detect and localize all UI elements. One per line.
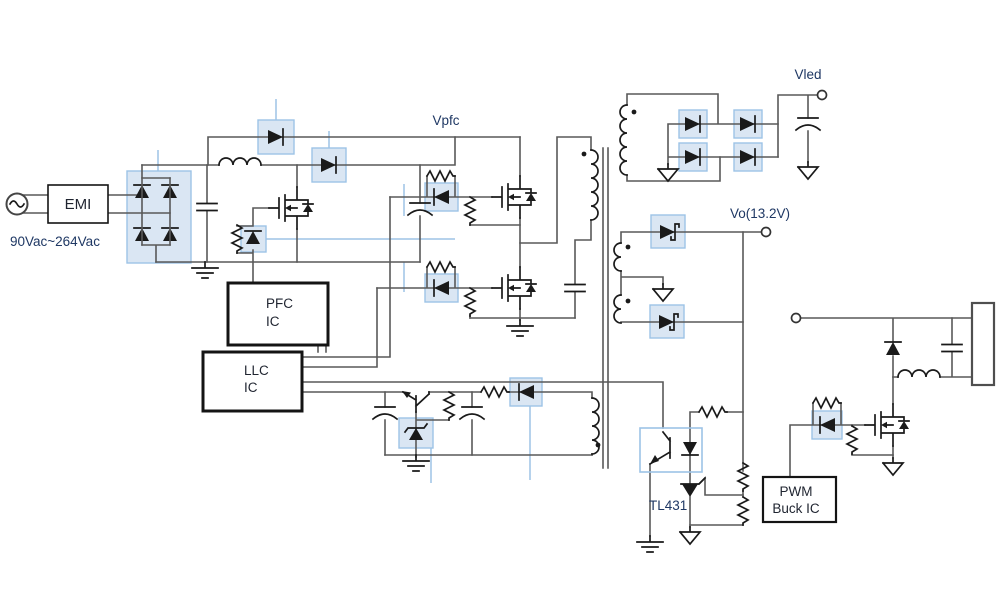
ground-icon: [798, 162, 818, 179]
vpfc-net-label: Vpfc: [432, 113, 459, 128]
ground-icon: [658, 164, 678, 181]
pfc-gate-resistor-icon: [232, 225, 242, 253]
blocks-and-labels: EMI 90Vac~264Vac PFC IC LLC IC PWM Buck …: [10, 67, 836, 522]
vled-winding-icon: [620, 105, 627, 175]
transformer-icon: [582, 105, 637, 468]
llc-ic-label-line1: LLC: [244, 363, 269, 378]
load-block: [972, 303, 994, 385]
pfc-ic-label-line2: IC: [266, 314, 280, 329]
buck-mosfet-icon: [865, 404, 909, 446]
vled-terminal: [818, 91, 827, 100]
divider-resistor-bottom-icon: [738, 497, 748, 525]
ground-icon: [507, 320, 533, 336]
schematic-canvas: EMI 90Vac~264Vac PFC IC LLC IC PWM Buck …: [0, 0, 1000, 600]
aux-bias-resistor-icon: [444, 392, 454, 420]
ground-icon: [653, 284, 673, 301]
llc-ic-label-line2: IC: [244, 380, 258, 395]
aux-cap-icon: [373, 407, 397, 419]
buck-cap-icon: [942, 345, 962, 352]
emi-filter-label: EMI: [65, 196, 92, 213]
wires: [17, 94, 972, 536]
hb-low-pulldown-resistor-icon: [465, 288, 475, 316]
ground-icon: [637, 536, 663, 552]
pwm-buck-ic-label-line2: Buck IC: [772, 501, 820, 516]
tl431-icon: [681, 478, 705, 497]
vo-terminal: [762, 228, 771, 237]
bulk-cap-icon: [197, 204, 217, 211]
hb-low-gate-resistor-icon: [427, 262, 455, 272]
vo-winding-icon: [614, 243, 621, 323]
pfc-mosfet-icon: [269, 187, 313, 229]
aux-series-resistor-icon: [481, 387, 509, 397]
aux-cap-icon: [460, 407, 484, 419]
pfc-ic-label-line1: PFC: [266, 296, 293, 311]
ground-icon: [403, 455, 429, 471]
vo-net-label: Vo(13.2V): [730, 206, 790, 221]
vled-output-cap-icon: [796, 118, 820, 130]
schematic-page: EMI 90Vac~264Vac PFC IC LLC IC PWM Buck …: [0, 0, 1000, 600]
primary-winding-icon: [591, 150, 598, 220]
core-icon: [603, 148, 608, 468]
ground-icon: [192, 262, 218, 278]
input-voltage-label: 90Vac~264Vac: [10, 234, 100, 249]
hb-high-pulldown-resistor-icon: [465, 197, 475, 225]
hb-low-mosfet-icon: [492, 267, 536, 309]
ground-icon: [883, 458, 903, 475]
pwm-buck-ic-label-line1: PWM: [780, 484, 813, 499]
opto-bias-resistor-icon: [699, 407, 727, 417]
tl431-label: TL431: [649, 498, 687, 513]
vled-net-label: Vled: [794, 67, 821, 82]
ac-source-icon: [7, 194, 28, 215]
resonant-cap-icon: [565, 285, 585, 292]
hb-high-gate-resistor-icon: [427, 171, 455, 181]
aux-transistor-icon: [402, 391, 429, 412]
buck-input-terminal: [792, 314, 801, 323]
buck-inductor-icon: [898, 370, 940, 377]
buck-pulldown-resistor-icon: [847, 426, 857, 454]
buck-gate-resistor-icon: [813, 398, 841, 408]
ground-icon: [680, 527, 700, 544]
hb-high-mosfet-icon: [492, 176, 536, 218]
pfc-inductor-icon: [219, 158, 261, 165]
components: [7, 91, 995, 553]
freewheel-diode-icon: [885, 342, 901, 355]
